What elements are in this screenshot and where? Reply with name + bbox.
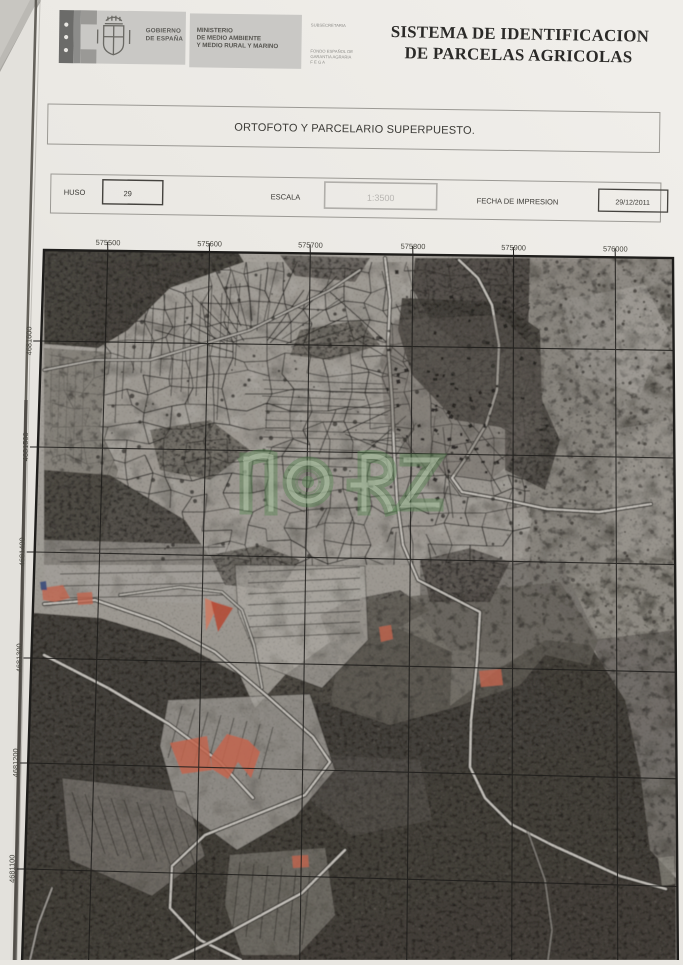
svg-text:MINISTERIO: MINISTERIO xyxy=(197,27,233,35)
svg-text:Y MEDIO RURAL Y MARINO: Y MEDIO RURAL Y MARINO xyxy=(196,42,278,50)
svg-text:4681100: 4681100 xyxy=(8,855,17,883)
svg-text:F E G A: F E G A xyxy=(310,60,325,65)
svg-text:29/12/2011: 29/12/2011 xyxy=(615,199,650,207)
svg-text:4681400: 4681400 xyxy=(18,537,27,566)
svg-text:575700: 575700 xyxy=(298,240,323,249)
svg-text:1:3500: 1:3500 xyxy=(367,193,395,203)
svg-text:576000: 576000 xyxy=(603,244,628,253)
svg-text:DE ESPAÑA: DE ESPAÑA xyxy=(146,35,184,43)
svg-text:575900: 575900 xyxy=(501,243,526,252)
svg-text:HUSO: HUSO xyxy=(64,188,86,197)
svg-text:SUBSECRETARIA: SUBSECRETARIA xyxy=(311,23,346,28)
svg-text:29: 29 xyxy=(123,189,131,198)
svg-text:ESCALA: ESCALA xyxy=(271,192,301,201)
svg-text:4681600: 4681600 xyxy=(24,327,33,356)
svg-text:575500: 575500 xyxy=(96,238,121,247)
svg-text:FECHA DE IMPRESION: FECHA DE IMPRESION xyxy=(477,196,559,206)
svg-text:575600: 575600 xyxy=(197,239,222,248)
svg-text:4681200: 4681200 xyxy=(11,748,20,777)
svg-text:575800: 575800 xyxy=(401,242,426,251)
svg-text:4681300: 4681300 xyxy=(14,643,23,672)
svg-text:GOBIERNO: GOBIERNO xyxy=(146,27,181,34)
svg-text:4681500: 4681500 xyxy=(21,432,30,461)
